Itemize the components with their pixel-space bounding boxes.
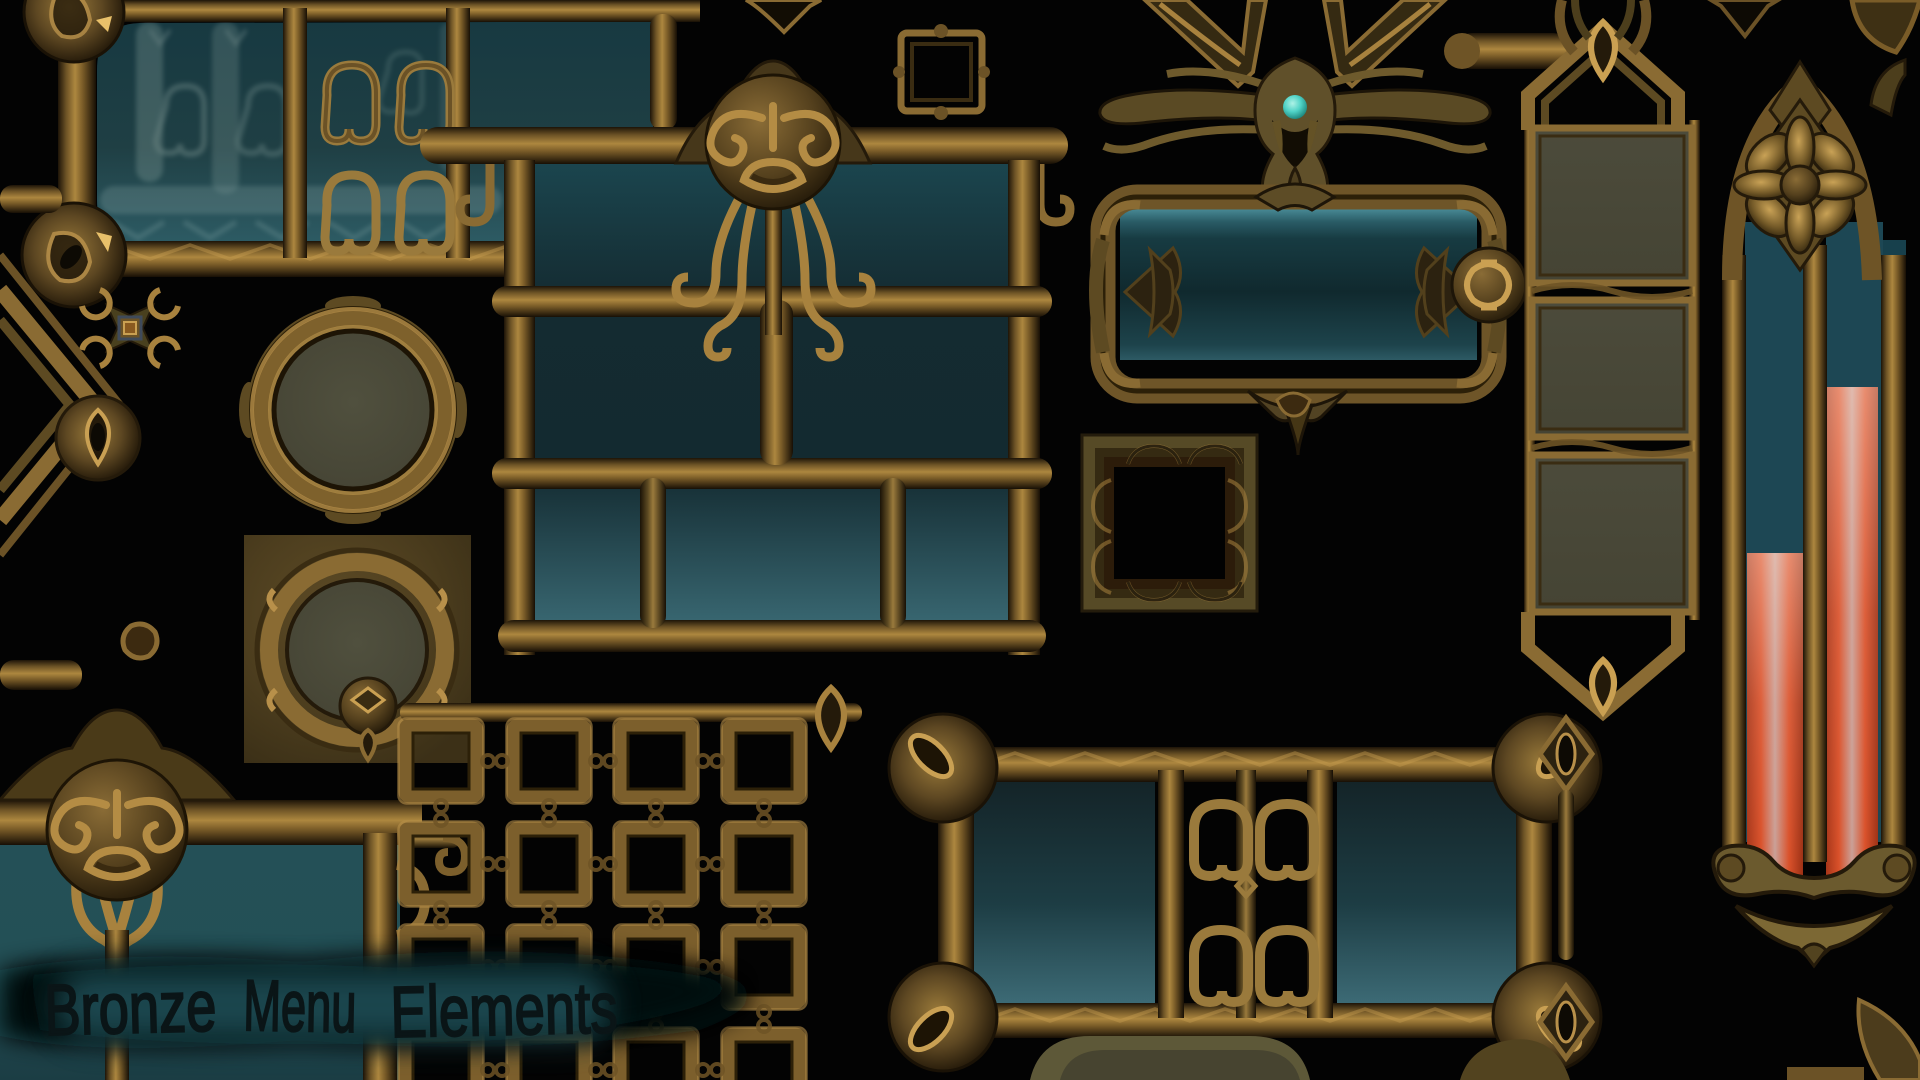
- svg-text:Menu: Menu: [243, 966, 357, 1048]
- svg-text:Elements: Elements: [390, 968, 619, 1053]
- svg-text:Bronze: Bronze: [43, 967, 217, 1051]
